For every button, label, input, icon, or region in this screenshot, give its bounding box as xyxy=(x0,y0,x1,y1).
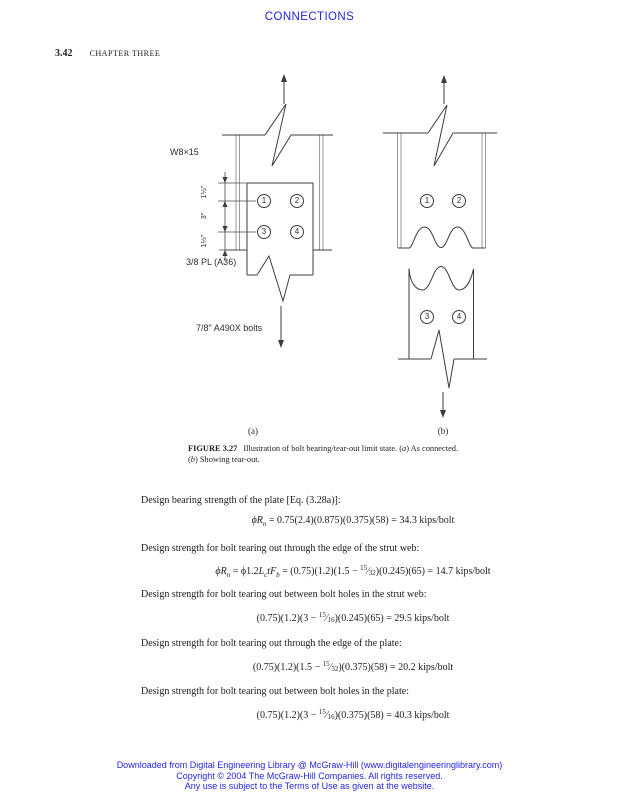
bolt-a-4: 4 xyxy=(290,225,304,239)
dim-label-bottom: 1½" xyxy=(199,230,215,252)
load-arrow-b xyxy=(440,392,446,418)
dim-label-top: 1½" xyxy=(199,181,215,203)
equation-bearing-strength: ϕRn = 0.75(2.4)(0.875)(0.375)(58) = 34.3… xyxy=(141,515,513,528)
paragraph-bearing-strength: Design bearing strength of the plate [Eq… xyxy=(141,495,513,506)
beam-size-label: W8×15 xyxy=(170,147,199,157)
load-arrow-a xyxy=(278,306,284,348)
paragraph-tearout-plate-holes: Design strength for bolt tearing out bet… xyxy=(141,686,513,697)
bolt-a-3: 3 xyxy=(257,225,271,239)
bolts-label: 7/8" A490X bolts xyxy=(196,323,262,333)
dim-label-mid: 3" xyxy=(199,205,215,227)
equation-tearout-plate-edge: (0.75)(1.2)(1.5 − 15⁄32)(0.375)(58) = 20… xyxy=(141,660,513,673)
break-symbol-a-top xyxy=(265,104,291,166)
diagram-b xyxy=(383,75,497,418)
footer-line-1: Downloaded from Digital Engineering Libr… xyxy=(0,760,619,770)
break-symbol-a-bottom xyxy=(257,256,290,301)
bolt-a-2: 2 xyxy=(290,194,304,208)
flange-lines xyxy=(236,133,486,250)
figure-caption-label: FIGURE 3.27 xyxy=(188,444,237,453)
torn-plate-edge xyxy=(409,267,474,291)
bolt-b-1: 1 xyxy=(420,194,434,208)
bolt-b-2: 2 xyxy=(452,194,466,208)
plate-label: 3/8 PL (A36) xyxy=(186,257,236,267)
paragraph-tearout-web-holes: Design strength for bolt tearing out bet… xyxy=(141,589,513,600)
up-arrow-b xyxy=(441,75,447,104)
break-symbol-b-top xyxy=(428,105,453,166)
footer-line-3: Any use is subject to the Terms of Use a… xyxy=(0,781,619,791)
torn-web-edge xyxy=(398,227,486,248)
bolt-b-3: 3 xyxy=(420,310,434,324)
equation-tearout-web-edge: ϕRn = ϕ1.2LctFb = (0.75)(1.2)(1.5 − 15⁄3… xyxy=(141,564,513,579)
bolt-a-1: 1 xyxy=(257,194,271,208)
footer-line-2: Copyright © 2004 The McGraw-Hill Compani… xyxy=(0,771,619,781)
bolt-b-4: 4 xyxy=(452,310,466,324)
sublabel-a: (a) xyxy=(240,426,266,436)
figure-caption: FIGURE 3.27Illustration of bolt bearing/… xyxy=(188,443,518,465)
equation-tearout-web-holes: (0.75)(1.2)(3 − 15⁄16)(0.245)(65) = 29.5… xyxy=(141,611,513,624)
paragraph-tearout-plate-edge: Design strength for bolt tearing out thr… xyxy=(141,638,513,649)
up-arrow-a xyxy=(281,74,287,104)
sublabel-b: (b) xyxy=(430,426,456,436)
figure-3-27-drawing xyxy=(0,0,619,450)
break-symbol-b-bottom xyxy=(431,330,454,388)
diagram-a xyxy=(218,74,333,348)
dimension-lines-a xyxy=(218,172,256,261)
book-page: CONNECTIONS 3.42CHAPTER THREE xyxy=(0,0,619,800)
paragraph-tearout-web-edge: Design strength for bolt tearing out thr… xyxy=(141,543,513,554)
equation-tearout-plate-holes: (0.75)(1.2)(3 − 15⁄16)(0.375)(58) = 40.3… xyxy=(141,708,513,721)
